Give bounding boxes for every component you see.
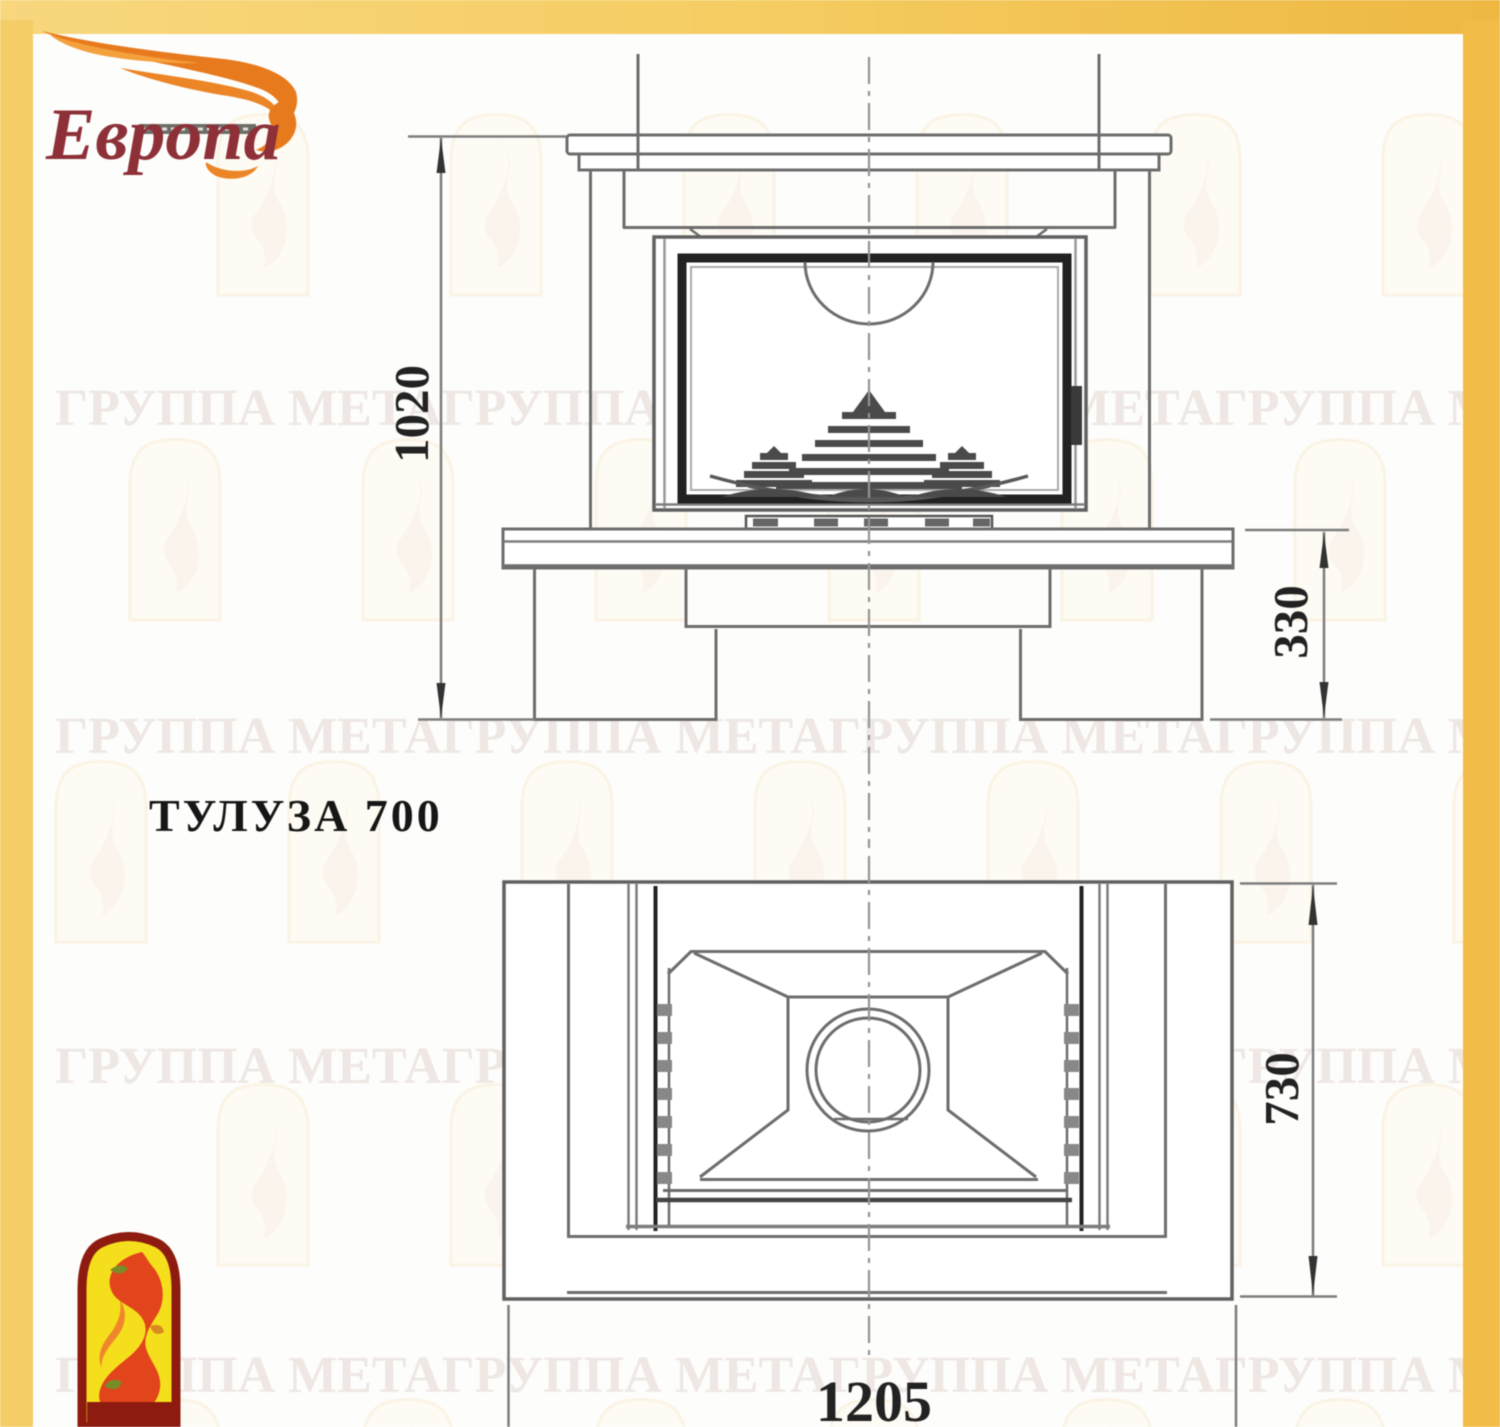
svg-text:730: 730 [1254, 1052, 1309, 1126]
svg-text:1020: 1020 [384, 365, 439, 463]
svg-text:ТУЛУЗА 700: ТУЛУЗА 700 [149, 790, 443, 841]
svg-text:ГРУППА МЕТАГРУППА МЕТАГРУППА М: ГРУППА МЕТАГРУППА МЕТАГРУППА МЕТАГРУППА … [55, 1347, 1500, 1404]
svg-text:Европа: Европа [45, 94, 281, 176]
svg-text:330: 330 [1263, 585, 1318, 659]
svg-text:ГРУППА МЕТАГРУППА МЕТАГРУППА М: ГРУППА МЕТАГРУППА МЕТАГРУППА МЕТАГРУППА … [55, 708, 1500, 765]
svg-text:1205: 1205 [816, 1369, 932, 1427]
